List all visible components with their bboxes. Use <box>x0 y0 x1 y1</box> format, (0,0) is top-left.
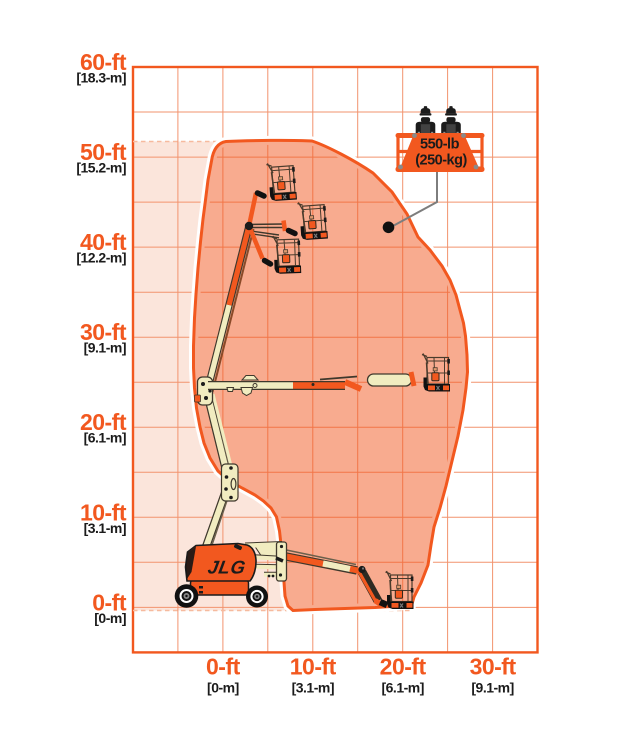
svg-text:[9.1-m]: [9.1-m] <box>471 680 513 696</box>
svg-text:20-ft: 20-ft <box>380 654 427 680</box>
svg-text:[9.1-m]: [9.1-m] <box>84 340 126 356</box>
svg-text:550-lb: 550-lb <box>420 137 460 153</box>
svg-text:[6.1-m]: [6.1-m] <box>84 430 126 446</box>
svg-text:[0-m]: [0-m] <box>94 610 126 626</box>
svg-text:[15.2-m]: [15.2-m] <box>76 160 126 176</box>
svg-text:10-ft: 10-ft <box>290 654 337 680</box>
svg-text:JLG: JLG <box>206 557 247 578</box>
svg-text:[18.3-m]: [18.3-m] <box>76 70 126 86</box>
svg-text:30-ft: 30-ft <box>470 654 517 680</box>
svg-text:[3.1-m]: [3.1-m] <box>292 680 334 696</box>
svg-text:(250-kg): (250-kg) <box>415 153 467 169</box>
svg-text:[6.1-m]: [6.1-m] <box>381 680 423 696</box>
svg-text:[12.2-m]: [12.2-m] <box>76 250 126 266</box>
svg-text:0-ft: 0-ft <box>206 654 241 680</box>
svg-text:[0-m]: [0-m] <box>207 680 239 696</box>
svg-text:[3.1-m]: [3.1-m] <box>84 520 126 536</box>
